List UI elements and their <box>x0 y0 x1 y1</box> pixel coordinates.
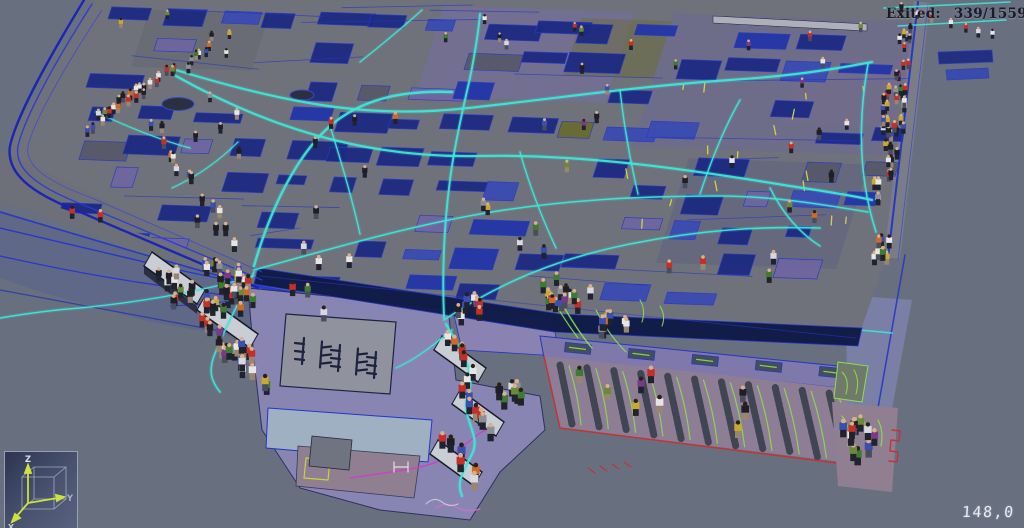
person <box>990 29 994 39</box>
axis-gizmo[interactable]: Z Y X <box>4 451 80 528</box>
person <box>976 27 980 38</box>
scene-3d-view[interactable] <box>0 0 1024 528</box>
exited-label: Exited: <box>886 6 941 22</box>
axis-y-label: Y <box>66 494 74 504</box>
person <box>495 382 503 400</box>
person <box>964 23 968 33</box>
exited-counter: Exited: 339/1559 <box>886 6 1024 22</box>
exited-value: 339/1559 <box>954 6 1024 22</box>
axis-x-label: X <box>8 523 15 528</box>
axis-z-label: Z <box>25 455 31 465</box>
simulation-viewport[interactable]: Exited: 339/1559 148,0 Z Y X <box>0 0 1024 528</box>
simulation-time: 148,0 <box>962 503 1016 521</box>
